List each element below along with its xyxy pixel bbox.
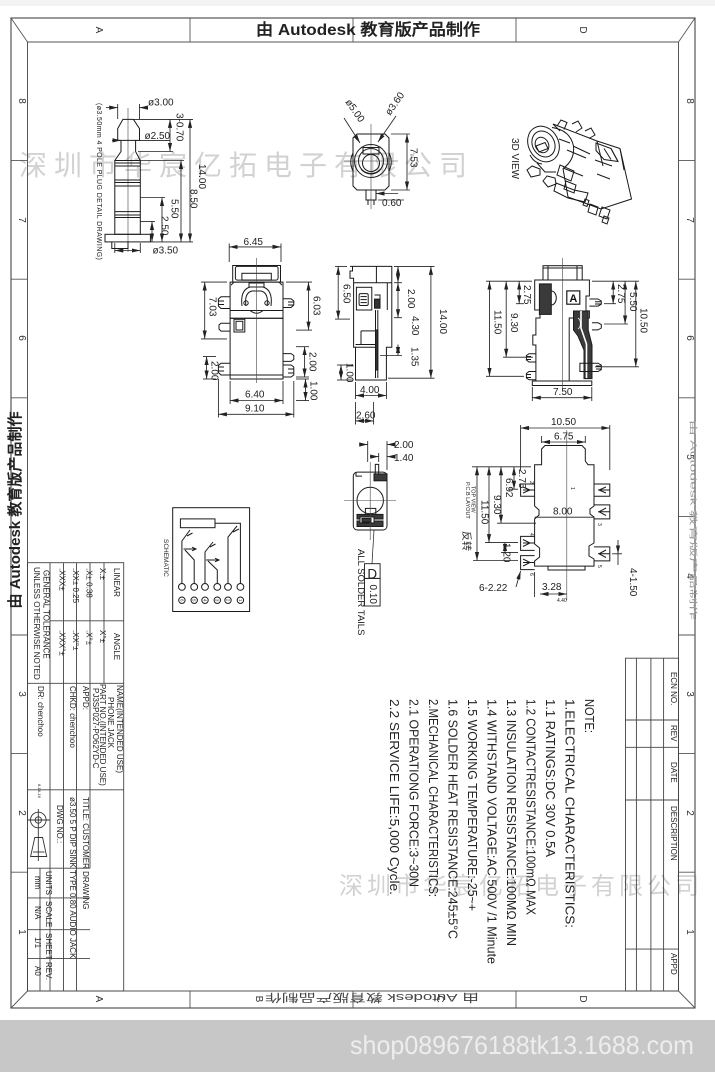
svg-text:LINEAR: LINEAR [112,568,121,597]
svg-text:2.75: 2.75 [516,469,527,489]
svg-text:NOTE:: NOTE: [582,699,597,733]
svg-text:DR: chenchoo: DR: chenchoo [36,686,45,737]
svg-text:ANGLE: ANGLE [112,633,121,660]
svg-text:APPD: APPD [669,953,678,975]
svg-text:A: A [569,293,577,305]
svg-text:7.03: 7.03 [207,297,218,317]
svg-text:4.00: 4.00 [360,385,380,396]
svg-text:N/A: N/A [33,906,42,920]
svg-text:2.MECHANICAL CHARACTERISTICS:: 2.MECHANICAL CHARACTERISTICS: [426,699,441,897]
svg-text:PJ3SP027-PO62YD-C: PJ3SP027-PO62YD-C [91,688,100,769]
svg-text:10.50: 10.50 [638,308,649,333]
svg-text:UNLESS OTHERWISE NOTED: UNLESS OTHERWISE NOTED [32,567,41,680]
svg-text:1.4 WITHSTAND VOLTAGE:AC 50: 1.4 WITHSTAND VOLTAGE:AC 500V /1 Minute [485,699,500,964]
svg-text:由 Autodesk 教育版产品制作: 由 Autodesk 教育版产品制作 [689,420,699,620]
svg-text:TOP VIEW: TOP VIEW [470,486,476,514]
svg-text:2: 2 [684,810,695,816]
svg-text:7.50: 7.50 [553,387,573,398]
svg-text:SCHEMATIC: SCHEMATIC [162,539,169,577]
svg-text:由 Autodesk 教育版产品制作: 由 Autodesk 教育版产品制作 [256,20,480,39]
svg-text:REV: REV [669,725,678,742]
svg-text:ALL SOLDER TAILS: ALL SOLDER TAILS [355,549,366,635]
svg-text:2.2 SERVICE LIFE:5,000 Cycl: 2.2 SERVICE LIFE:5,000 Cycle. [387,699,402,895]
svg-text:.XX°±: .XX°± [71,630,80,651]
svg-text:GENERAL TOLERANCE: GENERAL TOLERANCE [42,570,51,659]
svg-text:6.03: 6.03 [311,296,322,316]
svg-text:1.00: 1.00 [308,381,319,401]
svg-text:3.28: 3.28 [542,582,562,593]
svg-text:A: A [93,996,104,1003]
svg-text:2.00: 2.00 [394,440,414,451]
svg-text:.XXX°±: .XXX°± [58,630,67,656]
svg-text:2.00: 2.00 [209,361,220,381]
svg-text:7.53: 7.53 [408,148,419,168]
svg-text:2.50: 2.50 [159,216,170,236]
svg-text:10.50: 10.50 [551,417,576,428]
svg-text:.XX± 0.25: .XX± 0.25 [71,568,80,604]
svg-text:1.6 SOLDER HEAT RESISTANCE:: 1.6 SOLDER HEAT RESISTANCE:245±5°C [446,699,461,939]
svg-text:1/1: 1/1 [33,937,42,949]
svg-text:1: 1 [569,487,575,490]
svg-text:6-2.22: 6-2.22 [479,583,508,594]
svg-text:2.1 OPERATIONG FORCE:3~30N: 2.1 OPERATIONG FORCE:3~30N [407,699,422,887]
svg-text:ø3.50: ø3.50 [153,246,179,257]
svg-text:4.40: 4.40 [557,598,567,604]
svg-text:.X°±: .X°± [85,630,94,646]
svg-text:2: 2 [528,481,534,484]
svg-text:11.50: 11.50 [479,500,490,525]
svg-text:SCALE: SCALE [44,901,53,927]
svg-text:3D VIEW: 3D VIEW [509,138,520,180]
svg-text:ø2.50: ø2.50 [145,131,171,142]
svg-text:1.20: 1.20 [501,543,512,563]
svg-text:4-1.50: 4-1.50 [627,568,638,597]
svg-text:8.50: 8.50 [188,189,199,209]
svg-text:(ø3.50mm 4 POLE PLUG DETAIL DR: (ø3.50mm 4 POLE PLUG DETAIL DRAWING) [95,103,102,260]
svg-text:5: 5 [596,565,602,568]
svg-text:3: 3 [596,523,602,526]
svg-text:3: 3 [684,691,695,697]
svg-text:P.C.B LAYOUT: P.C.B LAYOUT [464,482,470,519]
svg-text:1.1 RATINGS:DC 30V 0.5A: 1.1 RATINGS:DC 30V 0.5A [543,699,558,857]
svg-text:0.10: 0.10 [367,585,378,605]
svg-text:9.30: 9.30 [491,495,502,515]
svg-text:2: 2 [16,810,27,816]
svg-text:6.92: 6.92 [503,478,514,498]
svg-text:6: 6 [528,573,534,576]
svg-text:APPD:: APPD: [81,686,90,710]
svg-text:由 Autodesk 教育版产品制作: 由 Autodesk 教育版产品制作 [6,412,24,609]
svg-text:6.40: 6.40 [245,390,265,401]
svg-text:2.00: 2.00 [307,352,318,372]
svg-text:A: A [93,27,104,34]
svg-text:UNITS: UNITS [44,871,53,895]
svg-text:9.10: 9.10 [245,404,265,415]
svg-text:7: 7 [684,217,695,223]
svg-text:1: 1 [684,929,695,935]
svg-text:4: 4 [528,533,534,536]
svg-text:反转: 反转 [460,531,473,551]
svg-text:1.40: 1.40 [394,453,414,464]
svg-text:8-18-16: 8-18-16 [37,784,42,799]
svg-text:1.00: 1.00 [344,363,355,383]
svg-text:3: 3 [16,691,27,697]
svg-text:NAME(INTENDED USE): NAME(INTENDED USE) [115,685,124,773]
svg-text:shop089676188tk13.1688.com: shop089676188tk13.1688.com [350,1030,694,1060]
svg-text:4.30: 4.30 [409,316,420,336]
svg-text:由 Autodesk 教育版产品制作: 由 Autodesk 教育版产品制作 [265,991,479,1005]
svg-text:2.60: 2.60 [356,411,376,422]
svg-text:1.2 CONTACTRESISTANCE:100mΩ: 1.2 CONTACTRESISTANCE:100mΩ MAX [524,699,539,915]
svg-text:B: B [253,996,264,1003]
svg-text:6.75: 6.75 [554,432,574,443]
svg-text:14.00: 14.00 [196,164,207,189]
svg-text:6: 6 [684,335,695,341]
svg-text:深圳市华宸亿拓电子有限公司: 深圳市华宸亿拓电子有限公司 [19,150,474,181]
svg-text:D: D [577,995,588,1002]
svg-text:DESCRIPTION: DESCRIPTION [669,806,678,861]
svg-text:1: 1 [16,929,27,935]
svg-text:11.50: 11.50 [492,310,503,335]
svg-text:5.50: 5.50 [627,292,638,312]
svg-text:2.75: 2.75 [521,285,532,305]
svg-text:2.75: 2.75 [615,284,626,304]
svg-text:ø3.50 5 P DIP SINK TYPE: ø3.50 5 P DIP SINK TYPE 0.80 AUDIO JACK [68,797,77,959]
svg-text:D: D [367,567,377,582]
svg-text:1.35: 1.35 [409,347,420,367]
svg-text:DATE: DATE [669,762,678,783]
svg-text:mm: mm [33,876,42,890]
svg-text:6: 6 [16,335,27,341]
svg-text:ø3.00: ø3.00 [148,98,174,109]
svg-text:1.3 INSULATION RESISTANCE:10: 1.3 INSULATION RESISTANCE:100MΩ MIN [504,699,519,946]
svg-text:2.00: 2.00 [405,289,416,309]
svg-text:TITLE: CUSTOMER DRAWING: TITLE: CUSTOMER DRAWING [81,797,90,909]
svg-text:14.00: 14.00 [437,309,448,334]
svg-text:1.ELECTRICAL CHARACTERISTICS:: 1.ELECTRICAL CHARACTERISTICS: [563,699,578,928]
svg-text:9.30: 9.30 [508,313,519,333]
svg-text:6.45: 6.45 [244,237,264,248]
svg-text:8: 8 [684,98,695,104]
svg-text:X°±: X°± [98,630,107,644]
svg-text:A0: A0 [33,966,42,976]
svg-text:8.00: 8.00 [553,507,573,518]
svg-text:0.60: 0.60 [382,198,402,209]
svg-text:6.50: 6.50 [341,284,352,304]
svg-text:.XXX±: .XXX± [58,568,67,591]
svg-text:REV.: REV. [44,962,53,980]
svg-text:3-0.70: 3-0.70 [174,113,185,142]
svg-text:DWG NO.:: DWG NO.: [55,805,64,843]
svg-text:7: 7 [16,217,27,223]
svg-text:X.±: X.± [98,568,107,581]
svg-text:.X± 0.38: .X± 0.38 [85,568,94,598]
svg-text:D: D [577,26,588,33]
svg-text:ECN NO.: ECN NO. [669,672,678,705]
svg-text:8: 8 [16,98,27,104]
svg-text:SHEET: SHEET [44,933,53,960]
svg-text:CHKD: chenchoo: CHKD: chenchoo [68,686,77,748]
svg-text:1.5 WORKING TEMPERATURE:-25~: 1.5 WORKING TEMPERATURE:-25~+ [465,699,480,911]
